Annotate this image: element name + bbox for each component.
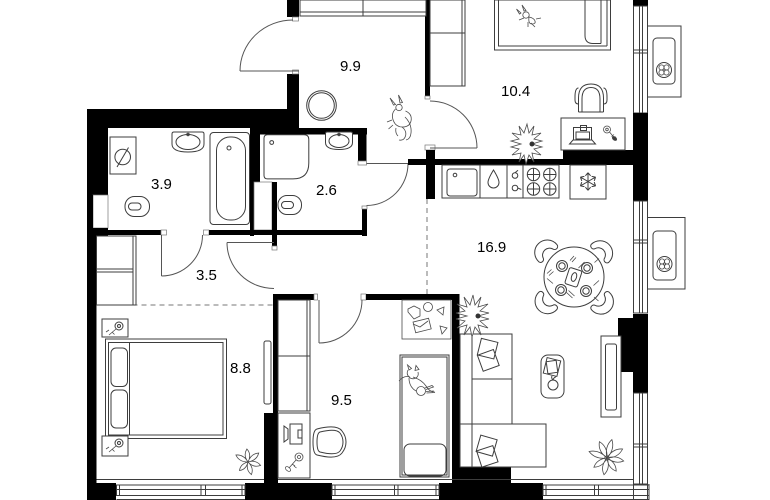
svg-text:2.6: 2.6 (316, 182, 337, 199)
svg-text:16.9: 16.9 (477, 239, 506, 256)
svg-text:9.9: 9.9 (340, 58, 361, 75)
svg-text:9.5: 9.5 (331, 392, 352, 409)
svg-text:8.8: 8.8 (230, 360, 251, 377)
svg-text:3.9: 3.9 (151, 176, 172, 193)
svg-text:10.4: 10.4 (501, 83, 530, 100)
svg-text:3.5: 3.5 (196, 267, 217, 284)
